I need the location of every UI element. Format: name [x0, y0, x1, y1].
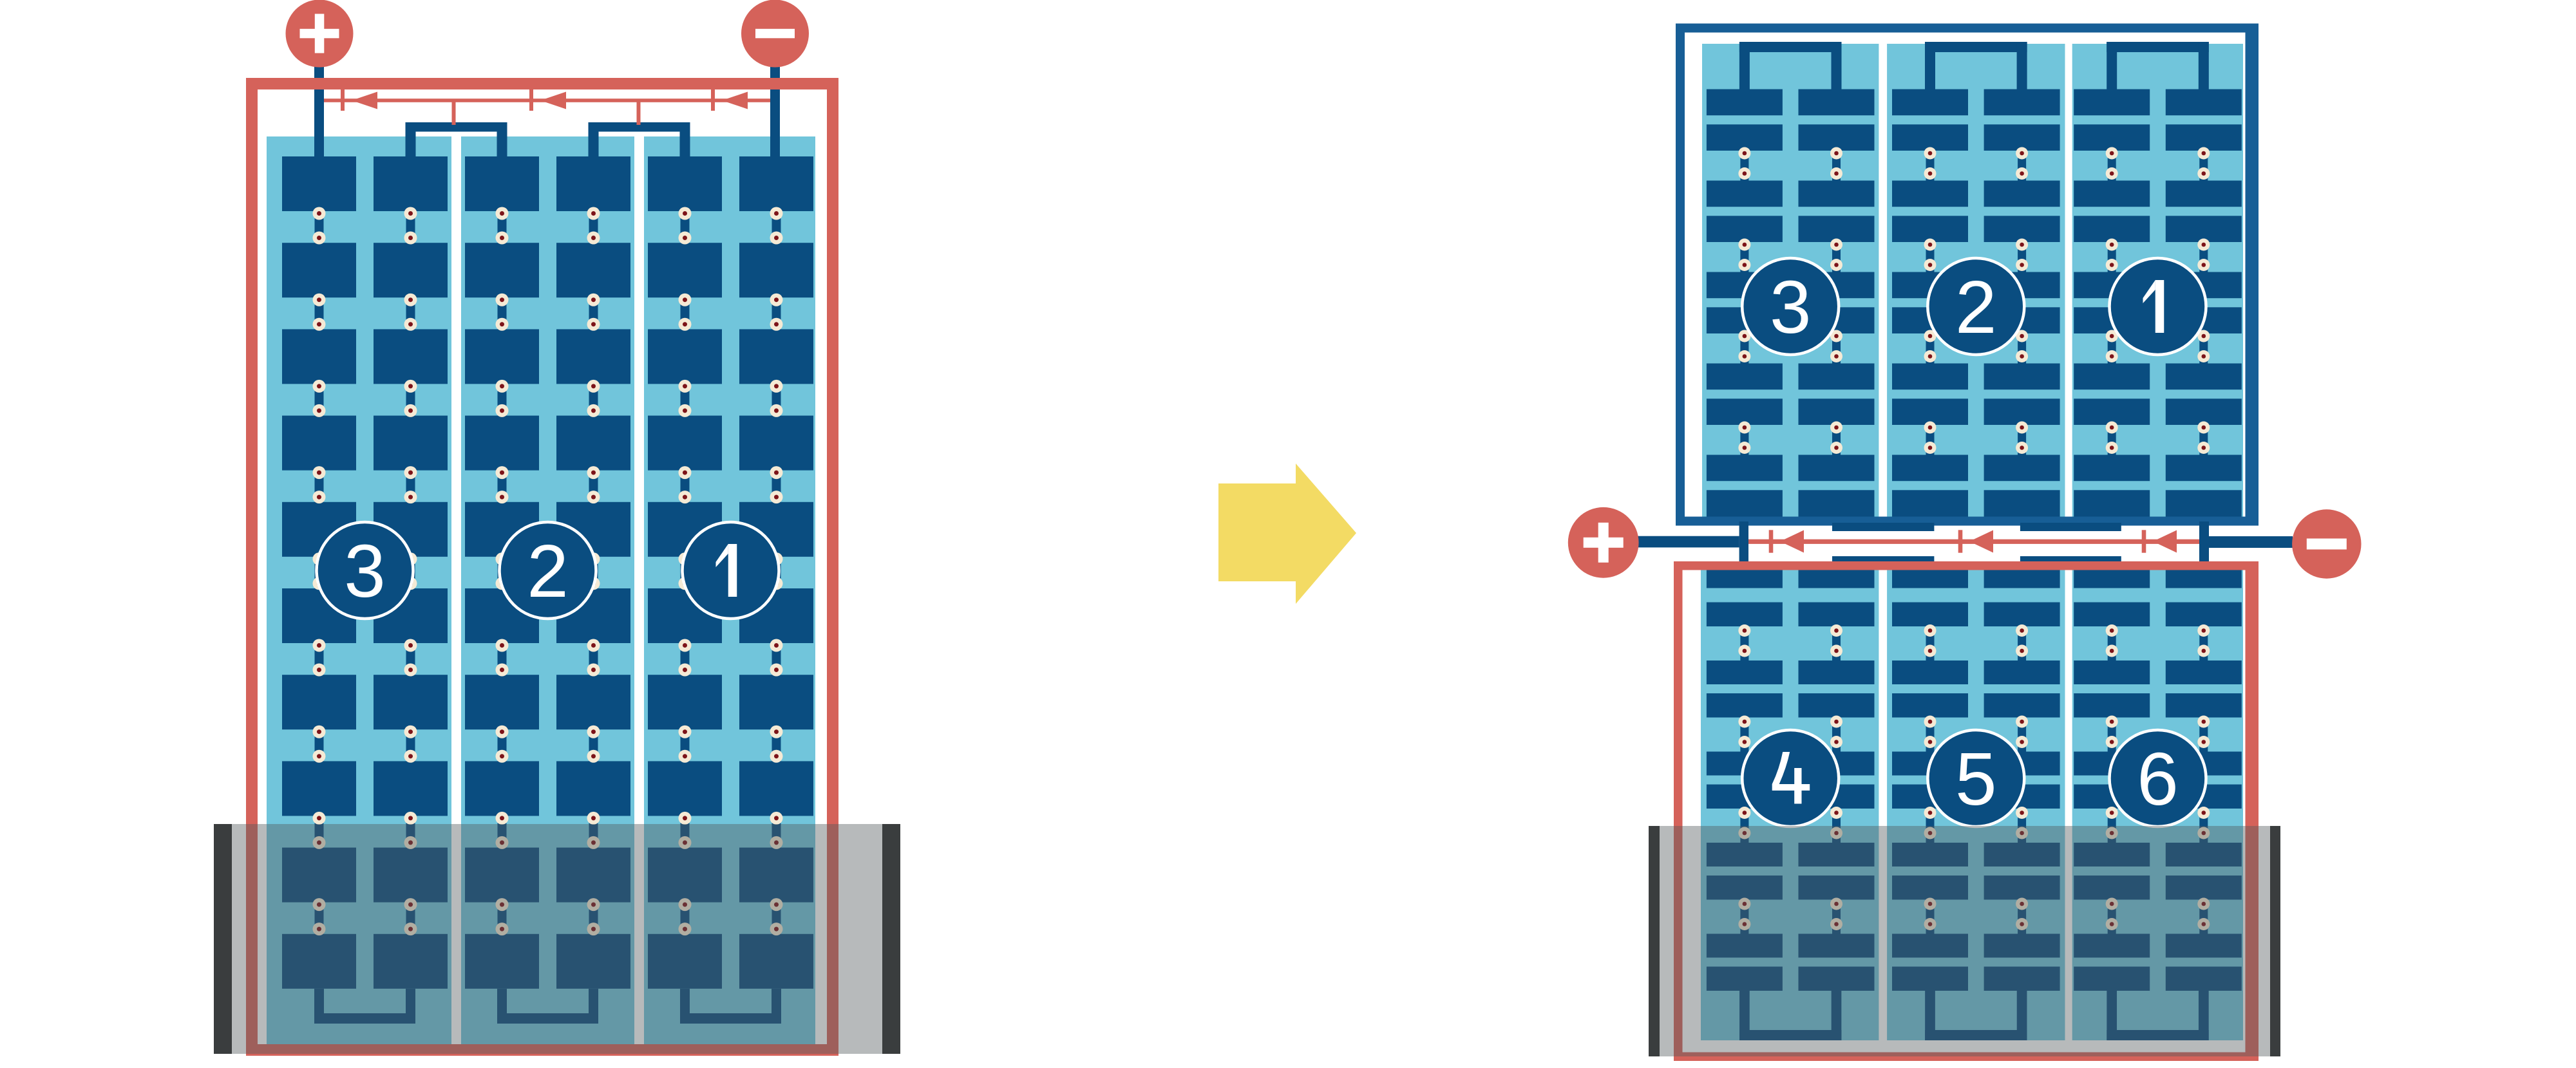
svg-text:2: 2	[1955, 265, 1997, 349]
svg-text:3: 3	[344, 529, 386, 613]
svg-text:5: 5	[1955, 737, 1997, 821]
svg-text:3: 3	[1770, 265, 1812, 349]
svg-text:2: 2	[527, 529, 569, 613]
svg-text:6: 6	[2137, 737, 2179, 821]
